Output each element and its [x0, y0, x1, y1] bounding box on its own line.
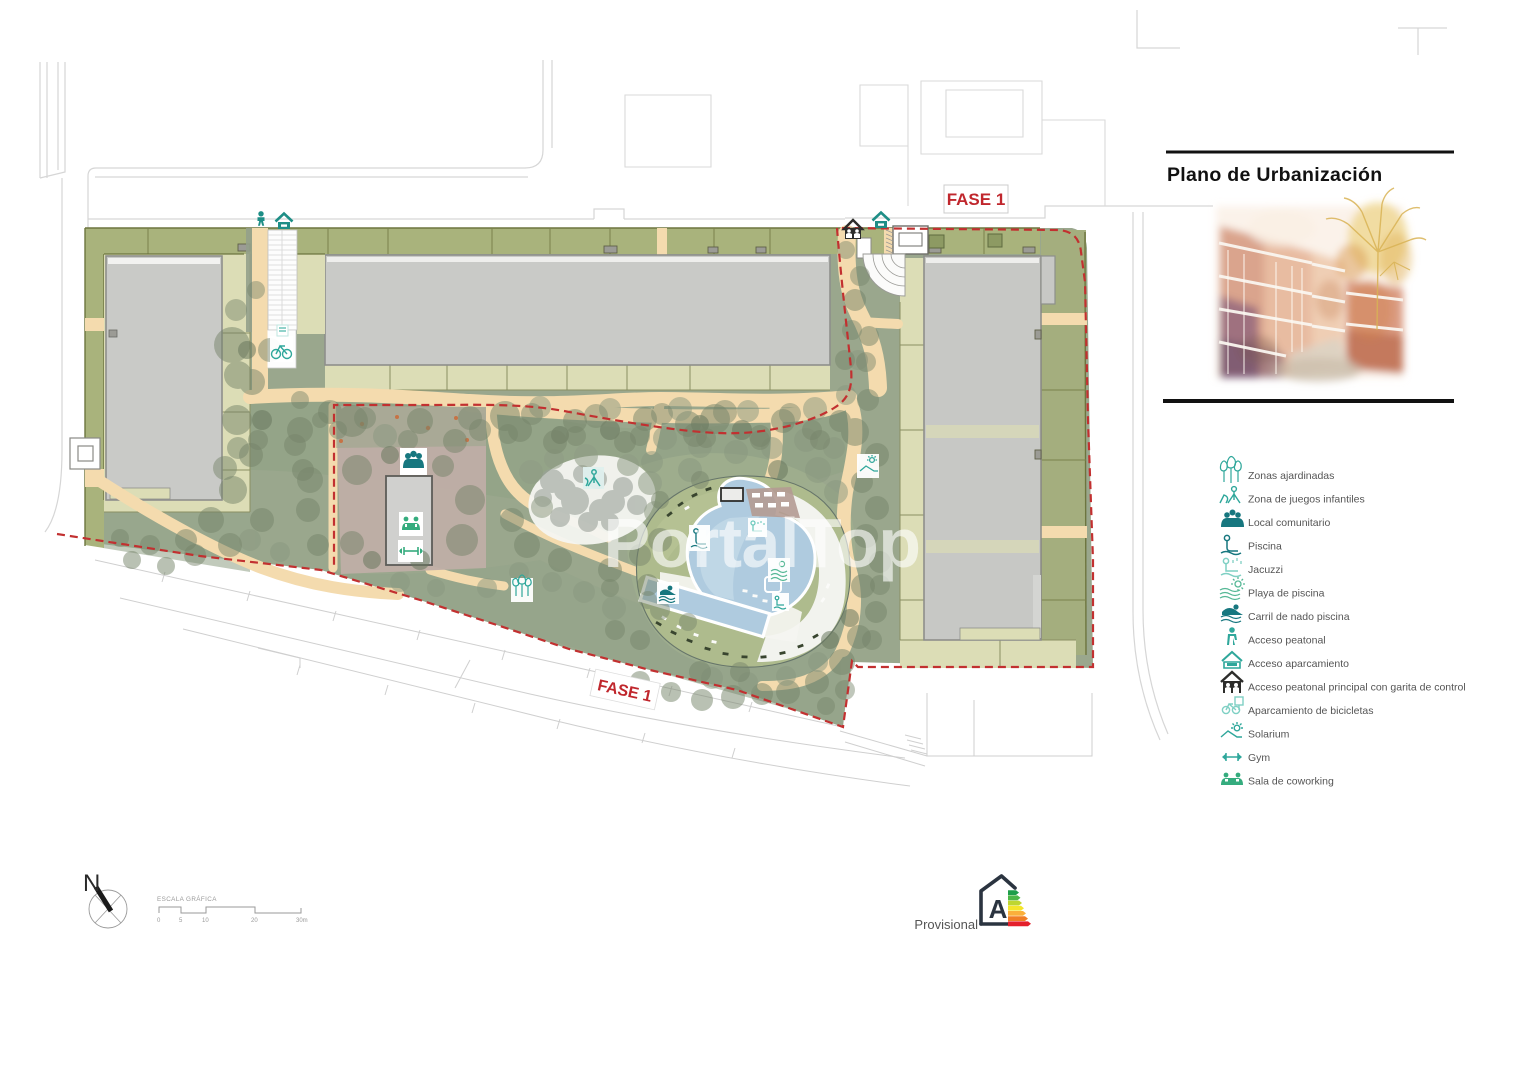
svg-text:Piscina: Piscina — [1248, 541, 1282, 553]
svg-text:Sala de coworking: Sala de coworking — [1248, 776, 1334, 788]
svg-text:Gym: Gym — [1248, 752, 1270, 764]
svg-text:30m: 30m — [296, 918, 308, 924]
svg-text:10: 10 — [202, 918, 209, 924]
svg-text:Provisional: Provisional — [914, 917, 978, 932]
svg-text:Solarium: Solarium — [1248, 729, 1290, 741]
svg-text:Zona de juegos infantiles: Zona de juegos infantiles — [1248, 494, 1365, 506]
svg-text:A: A — [989, 894, 1008, 924]
svg-text:Carril de nado piscina: Carril de nado piscina — [1248, 611, 1350, 623]
svg-text:N: N — [83, 870, 100, 897]
svg-text:0: 0 — [157, 918, 161, 924]
svg-text:Local comunitario: Local comunitario — [1248, 517, 1330, 529]
svg-text:Plano de Urbanización: Plano de Urbanización — [1167, 164, 1382, 186]
svg-text:Acceso peatonal: Acceso peatonal — [1248, 635, 1326, 647]
svg-text:ESCALA GRÁFICA: ESCALA GRÁFICA — [157, 894, 217, 903]
svg-text:Zonas ajardinadas: Zonas ajardinadas — [1248, 470, 1334, 482]
svg-text:FASE 1: FASE 1 — [947, 190, 1006, 209]
svg-text:5: 5 — [179, 918, 183, 924]
svg-text:Jacuzzi: Jacuzzi — [1248, 564, 1283, 576]
svg-text:PortalTop: PortalTop — [604, 504, 921, 582]
svg-text:Acceso aparcamiento: Acceso aparcamiento — [1248, 658, 1349, 670]
svg-text:20: 20 — [251, 918, 258, 924]
svg-text:Aparcamiento de bicicletas: Aparcamiento de bicicletas — [1248, 705, 1373, 717]
svg-text:Acceso peatonal principal con: Acceso peatonal principal con garita de … — [1248, 682, 1466, 694]
svg-text:Playa de piscina: Playa de piscina — [1248, 588, 1325, 600]
